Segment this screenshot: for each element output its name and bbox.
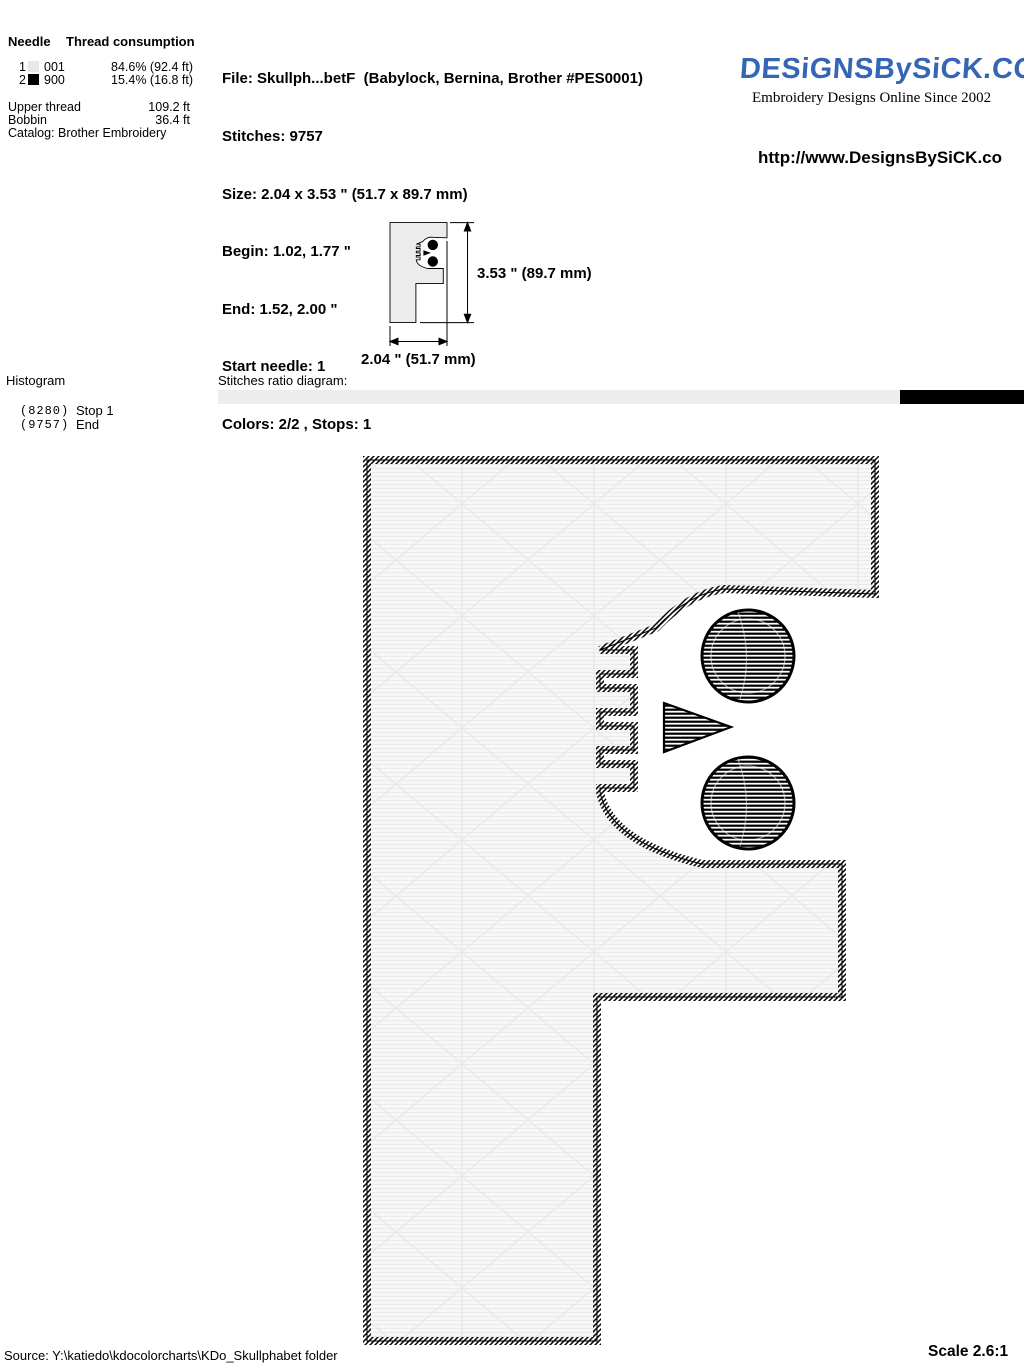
- stitches-ratio-label: Stitches ratio diagram:: [218, 373, 347, 388]
- file-info-line: Begin: 1.02, 1.77 ": [222, 242, 643, 261]
- ratio-segment: [218, 390, 900, 404]
- ratio-segment: [900, 390, 1024, 404]
- bobbin-value: 36.4 ft: [110, 113, 190, 127]
- height-dimension-label: 3.53 " (89.7 mm): [477, 265, 592, 282]
- thread-color-swatch: [28, 74, 39, 85]
- histogram-count: (8280): [20, 404, 69, 418]
- file-info-line: End: 1.52, 2.00 ": [222, 300, 643, 319]
- site-url: http://www.DesignsBySiCK.co: [758, 148, 1002, 168]
- bobbin-label: Bobbin: [8, 113, 47, 127]
- stitches-ratio-bar: [218, 390, 1024, 404]
- thread-consumption: 15.4% (16.8 ft): [111, 73, 193, 87]
- thread-code: 900: [44, 73, 65, 87]
- file-info-line: Colors: 2/2 , Stops: 1: [222, 415, 643, 434]
- needle-row-number: 1: [19, 60, 26, 74]
- width-dimension-label: 2.04 " (51.7 mm): [361, 351, 476, 368]
- letter-f-design: [367, 460, 875, 1341]
- skull-nose: [664, 703, 731, 752]
- file-info-line: Stitches: 9757: [222, 127, 643, 146]
- brand-tagline: Embroidery Designs Online Since 2002: [752, 90, 991, 107]
- file-info-line: Size: 2.04 x 3.53 " (51.7 x 89.7 mm): [222, 185, 643, 204]
- needle-row-number: 2: [19, 73, 26, 87]
- consumption-col-header: Thread consumption: [66, 34, 195, 49]
- thread-consumption: 84.6% (92.4 ft): [111, 60, 193, 74]
- thread-color-swatch: [28, 61, 39, 72]
- scale-label: Scale 2.6:1: [928, 1343, 1008, 1361]
- histogram-label: Stop 1: [76, 403, 114, 418]
- footer-source-path: Source: Y:\katiedo\kdocolorcharts\KDo_Sk…: [4, 1348, 338, 1363]
- upper-thread-value: 109.2 ft: [110, 100, 190, 114]
- needle-col-header: Needle: [8, 34, 51, 49]
- thread-code: 001: [44, 60, 65, 74]
- histogram-label: End: [76, 417, 99, 432]
- file-info-line: File: Skullph...betF (Babylock, Bernina,…: [222, 69, 643, 88]
- histogram-title: Histogram: [6, 373, 65, 388]
- upper-thread-label: Upper thread: [8, 100, 81, 114]
- brand-logo: DESiGNSBySiCK.COM: [739, 53, 1024, 86]
- skull-eye-lower: [702, 757, 794, 849]
- skull-eye-upper: [702, 610, 794, 702]
- catalog-label: Catalog: Brother Embroidery: [8, 126, 166, 140]
- histogram-count: (9757): [20, 418, 69, 432]
